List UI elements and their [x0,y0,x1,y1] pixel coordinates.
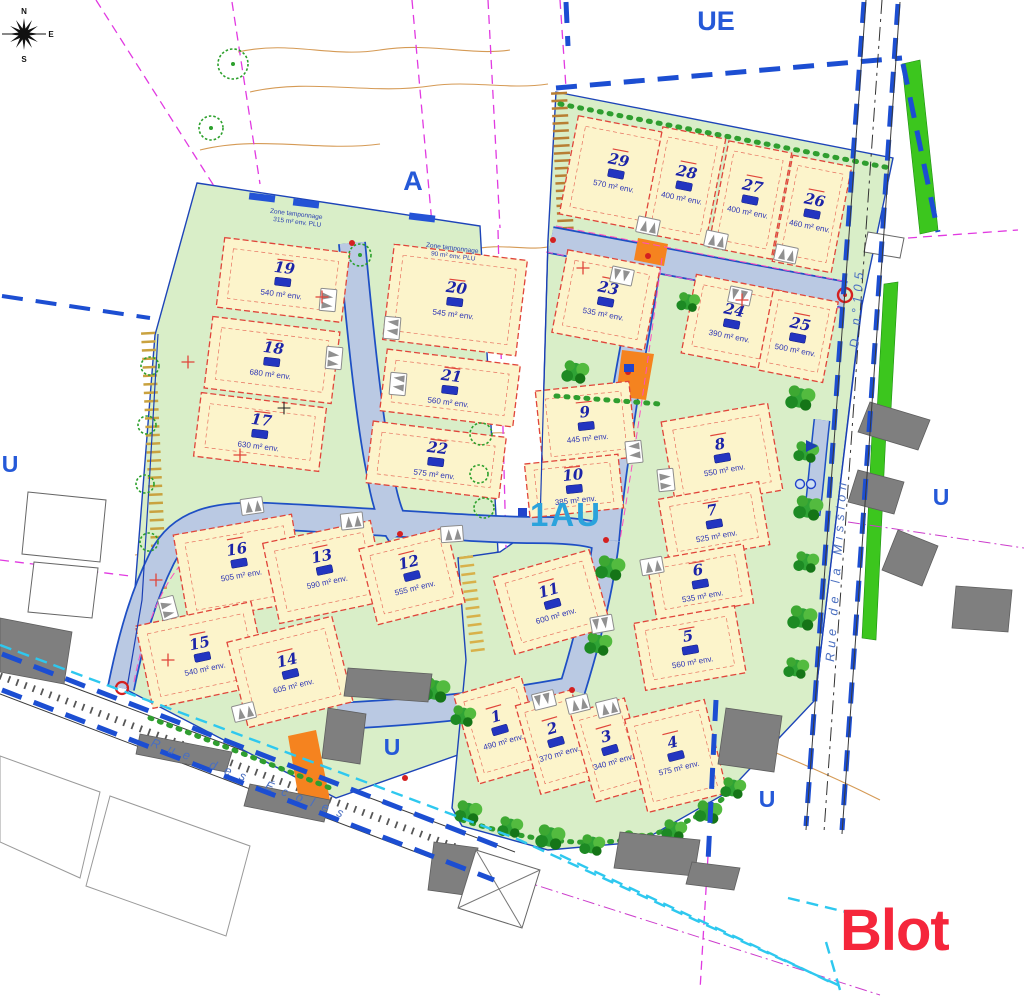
manhole-icon [796,480,805,489]
utility-box-icon [624,364,634,372]
svg-text:N: N [21,7,27,16]
svg-text:22: 22 [425,438,449,459]
svg-text:19: 19 [273,258,296,278]
lot-20: 20 545 m² env. [383,244,528,356]
svg-text:10: 10 [562,465,585,485]
svg-text:21: 21 [439,366,463,387]
zone-label-u-southeast: U [759,786,776,812]
lot-type-badge [274,277,291,287]
zone-label-u-west: U [2,451,19,477]
lot-9: 9 445 m² env. [535,381,636,466]
svg-text:E: E [48,30,54,39]
svg-text:18: 18 [262,338,285,358]
zone-label-a: A [403,166,423,196]
compass-rose-icon: N E S O [0,7,54,64]
svg-text:16: 16 [225,539,249,560]
svg-text:17: 17 [250,410,273,430]
zone-label-u-east: U [933,484,950,510]
blot-logo: Blot [840,898,949,963]
zone-label-ue: UE [697,6,735,36]
zone-label-u-south: U [384,734,401,760]
svg-text:20: 20 [444,278,468,299]
svg-text:S: S [21,55,27,64]
site-plan-map: 19 540 m² env. 18 680 m² env. 17 630 m² … [0,0,1024,998]
lot-23: 23 535 m² env. [552,250,660,350]
zone-label-1au: 1AU [530,496,602,533]
plan-viewport: 19 540 m² env. 18 680 m² env. 17 630 m² … [0,0,1024,998]
